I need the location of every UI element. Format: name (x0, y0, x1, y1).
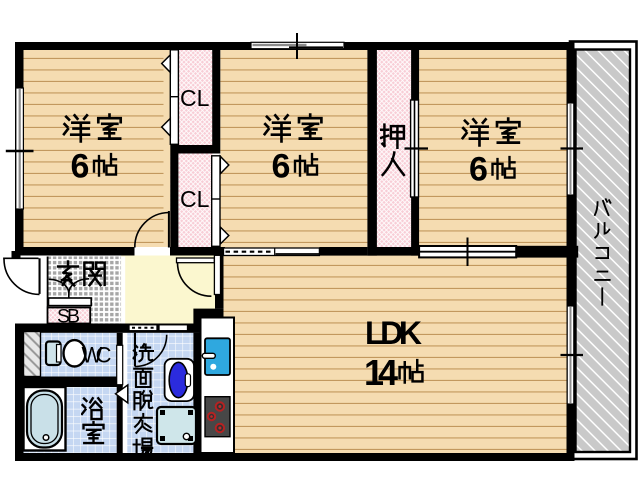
svg-text:LDK: LDK (365, 315, 422, 351)
svg-text:6: 6 (272, 148, 291, 186)
svg-text:WC: WC (82, 343, 112, 368)
svg-text:SB: SB (57, 306, 80, 328)
svg-text:CL: CL (180, 85, 210, 111)
svg-text:14: 14 (364, 352, 398, 393)
svg-text:6: 6 (71, 148, 90, 186)
svg-text:6: 6 (469, 151, 488, 189)
svg-text:CL: CL (180, 186, 210, 212)
